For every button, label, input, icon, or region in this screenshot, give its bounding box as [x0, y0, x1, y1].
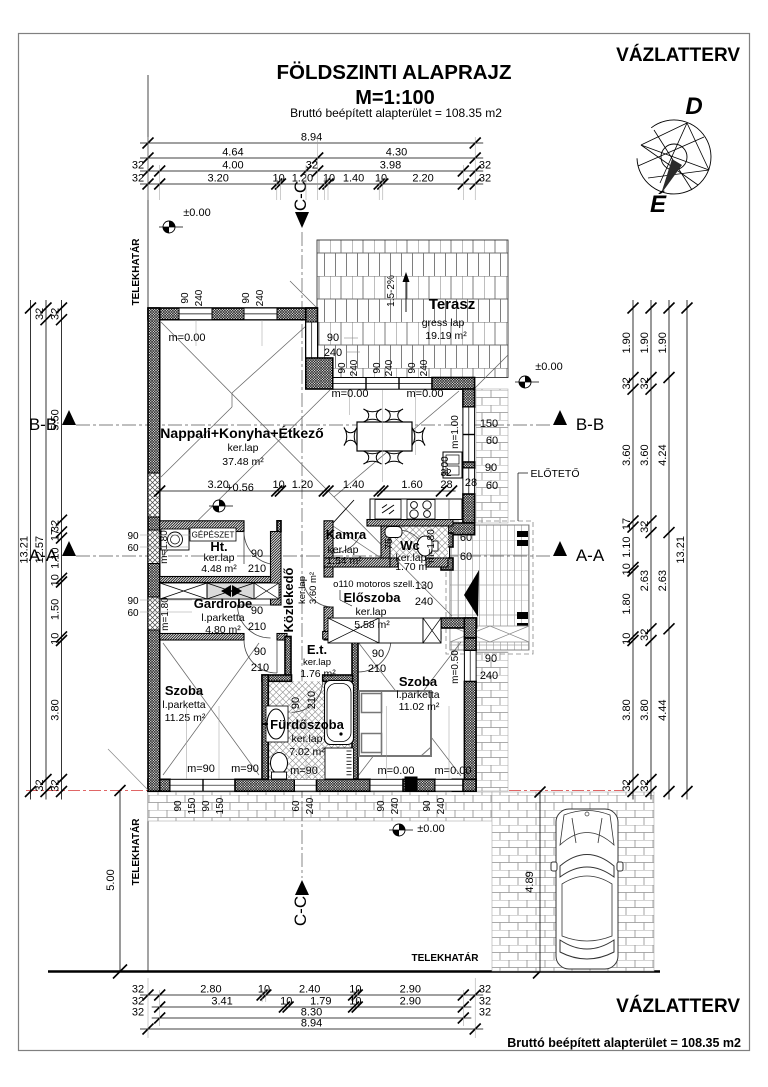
svg-text:Szoba: Szoba — [165, 683, 204, 698]
svg-text:90: 90 — [485, 462, 497, 474]
svg-text:28: 28 — [440, 479, 452, 491]
svg-text:1.90: 1.90 — [621, 332, 633, 353]
svg-text:2.63: 2.63 — [639, 570, 651, 591]
svg-text:210: 210 — [306, 691, 318, 709]
svg-text:90: 90 — [127, 596, 139, 607]
svg-text:3.20: 3.20 — [207, 173, 228, 185]
svg-text:+0.56: +0.56 — [226, 482, 254, 494]
svg-text:90: 90 — [180, 292, 191, 304]
svg-text:10: 10 — [272, 173, 284, 185]
svg-text:3.60 m²: 3.60 m² — [308, 572, 319, 604]
svg-text:90: 90 — [376, 800, 387, 812]
svg-text:60: 60 — [486, 480, 498, 492]
svg-text:32: 32 — [132, 160, 144, 172]
svg-text:240: 240 — [324, 347, 342, 359]
svg-text:32: 32 — [34, 308, 46, 320]
svg-text:1.50: 1.50 — [50, 599, 62, 620]
svg-text:3.20: 3.20 — [207, 479, 228, 491]
svg-text:Kamra: Kamra — [326, 527, 367, 542]
svg-text:Közlekedő: Közlekedő — [281, 567, 296, 632]
svg-text:FÖLDSZINTI ALAPRAJZ: FÖLDSZINTI ALAPRAJZ — [277, 61, 512, 84]
svg-text:10: 10 — [349, 996, 361, 1008]
svg-text:ELŐTETŐ: ELŐTETŐ — [530, 466, 579, 480]
svg-text:10: 10 — [621, 563, 633, 575]
svg-text:m=90: m=90 — [187, 763, 215, 775]
svg-text:32: 32 — [50, 779, 62, 791]
svg-text:ker.lap: ker.lap — [292, 733, 323, 745]
svg-text:240: 240 — [480, 670, 498, 682]
svg-text:2.80: 2.80 — [200, 984, 221, 996]
svg-text:1.40: 1.40 — [343, 173, 364, 185]
svg-text:4.00: 4.00 — [222, 160, 243, 172]
svg-text:1.20: 1.20 — [292, 479, 313, 491]
svg-text:±0.00: ±0.00 — [535, 361, 562, 373]
svg-text:10: 10 — [349, 984, 361, 996]
svg-text:3.98: 3.98 — [380, 160, 401, 172]
svg-text:13.21: 13.21 — [675, 536, 687, 564]
svg-text:m=1.80: m=1.80 — [426, 529, 437, 563]
svg-text:37.48 m²: 37.48 m² — [222, 456, 264, 468]
svg-text:240: 240 — [384, 359, 395, 376]
svg-text:10: 10 — [323, 173, 335, 185]
svg-text:m=0.00: m=0.00 — [407, 388, 444, 400]
svg-text:13.21: 13.21 — [19, 536, 31, 564]
svg-text:ker.lap: ker.lap — [303, 657, 331, 668]
svg-text:m=1.80: m=1.80 — [160, 597, 171, 631]
svg-text:4.24: 4.24 — [657, 444, 669, 465]
svg-text:90: 90 — [422, 800, 433, 812]
svg-text:3.41: 3.41 — [211, 996, 232, 1008]
svg-text:240: 240 — [349, 359, 360, 376]
svg-text:E.t.: E.t. — [307, 642, 327, 657]
svg-text:l.parketta: l.parketta — [201, 612, 244, 624]
svg-text:240: 240 — [436, 797, 447, 814]
svg-text:A-A: A-A — [576, 546, 605, 565]
svg-text:3.60: 3.60 — [639, 444, 651, 465]
svg-text:240: 240 — [194, 289, 205, 306]
svg-text:l.parketta: l.parketta — [396, 689, 439, 701]
svg-text:5.50: 5.50 — [50, 409, 62, 430]
svg-text:60: 60 — [460, 551, 472, 563]
svg-text:32: 32 — [132, 984, 144, 996]
svg-text:32: 32 — [639, 521, 651, 533]
svg-text:90: 90 — [254, 646, 266, 658]
svg-text:TELEKHATÁR: TELEKHATÁR — [129, 238, 142, 306]
svg-text:Wc: Wc — [400, 538, 420, 553]
svg-text:12.57: 12.57 — [34, 536, 46, 564]
svg-text:m=0.00: m=0.00 — [332, 388, 369, 400]
svg-text:90: 90 — [372, 362, 383, 374]
svg-text:gress lap: gress lap — [422, 317, 465, 329]
svg-text:10: 10 — [50, 574, 62, 586]
svg-text:75: 75 — [384, 538, 395, 550]
svg-text:1.60: 1.60 — [401, 479, 422, 491]
svg-text:m=0.00: m=0.00 — [435, 765, 472, 777]
svg-text:240: 240 — [305, 797, 316, 814]
svg-text:2.20: 2.20 — [412, 173, 433, 185]
svg-text:TELEKHATÁR: TELEKHATÁR — [129, 818, 142, 886]
svg-text:m=0.50: m=0.50 — [450, 650, 461, 684]
svg-text:90: 90 — [241, 292, 252, 304]
svg-text:150: 150 — [187, 797, 198, 814]
svg-text:VÁZLATTERV: VÁZLATTERV — [616, 995, 740, 1017]
svg-text:32: 32 — [479, 160, 491, 172]
svg-text:ker.lap: ker.lap — [356, 606, 387, 618]
svg-text:C-C: C-C — [291, 896, 310, 926]
svg-text:D: D — [685, 93, 702, 120]
svg-text:150: 150 — [480, 418, 498, 430]
svg-text:ker.lap: ker.lap — [228, 442, 259, 454]
svg-text:Terasz: Terasz — [429, 296, 475, 313]
svg-text:m=90: m=90 — [231, 763, 259, 775]
svg-text:32: 32 — [479, 984, 491, 996]
svg-text:90: 90 — [407, 362, 418, 374]
svg-text:10: 10 — [50, 633, 62, 645]
svg-text:19.19 m²: 19.19 m² — [425, 330, 467, 342]
svg-text:32: 32 — [639, 629, 651, 641]
svg-text:32: 32 — [639, 377, 651, 389]
svg-text:Fürdőszoba: Fürdőszoba — [270, 717, 344, 732]
svg-text:Szoba: Szoba — [399, 674, 438, 689]
svg-text:240: 240 — [390, 797, 401, 814]
svg-text:240: 240 — [419, 359, 430, 376]
svg-text:17: 17 — [621, 518, 633, 530]
svg-text:TELEKHATÁR: TELEKHATÁR — [411, 951, 479, 964]
svg-text:Gardrobe: Gardrobe — [194, 596, 253, 611]
svg-text:11.25 m²: 11.25 m² — [165, 712, 206, 724]
svg-text:4.44: 4.44 — [657, 699, 669, 720]
svg-text:1.40: 1.40 — [343, 479, 364, 491]
svg-text:m=0.00: m=0.00 — [169, 332, 206, 344]
svg-text:1.5-2%: 1.5-2% — [386, 275, 397, 307]
svg-text:l.parketta: l.parketta — [162, 699, 205, 711]
svg-text:VÁZLATTERV: VÁZLATTERV — [616, 44, 740, 66]
svg-text:90: 90 — [337, 362, 348, 374]
svg-text:4.30: 4.30 — [386, 147, 407, 159]
svg-text:210: 210 — [248, 621, 266, 633]
svg-text:10: 10 — [621, 633, 633, 645]
svg-text:90: 90 — [327, 332, 339, 344]
svg-text:4.64: 4.64 — [222, 147, 243, 159]
svg-text:240: 240 — [415, 596, 433, 608]
svg-text:o110 motoros szell.: o110 motoros szell. — [333, 579, 415, 590]
svg-text:C-C: C-C — [291, 181, 310, 211]
svg-text:±0.00: ±0.00 — [417, 823, 444, 835]
svg-text:±0.00: ±0.00 — [183, 207, 210, 219]
svg-text:60: 60 — [291, 800, 302, 812]
svg-text:2.90: 2.90 — [400, 984, 421, 996]
svg-text:90: 90 — [372, 648, 384, 660]
svg-text:8.94: 8.94 — [301, 1018, 322, 1030]
svg-text:Nappali+Konyha+Étkező: Nappali+Konyha+Étkező — [160, 425, 323, 441]
svg-text:4.80 m²: 4.80 m² — [205, 624, 241, 636]
svg-text:10: 10 — [258, 984, 270, 996]
svg-text:4.89: 4.89 — [524, 871, 536, 892]
svg-text:3.80: 3.80 — [621, 699, 633, 720]
svg-text:90: 90 — [485, 653, 497, 665]
svg-text:90: 90 — [127, 531, 139, 542]
svg-text:1.76 m²: 1.76 m² — [300, 668, 336, 680]
svg-text:4.48 m²: 4.48 m² — [201, 563, 237, 575]
svg-text:2.40: 2.40 — [299, 984, 320, 996]
svg-text:Bruttó beépített alapterület =: Bruttó beépített alapterület = 108.35 m2 — [290, 106, 502, 120]
svg-text:8.94: 8.94 — [301, 132, 322, 144]
svg-text:210: 210 — [251, 662, 269, 674]
svg-text:210: 210 — [248, 563, 266, 575]
svg-text:3.80: 3.80 — [639, 699, 651, 720]
svg-text:1.10: 1.10 — [621, 536, 633, 557]
svg-text:60: 60 — [127, 608, 139, 619]
svg-text:3.60: 3.60 — [621, 444, 633, 465]
svg-text:32: 32 — [306, 160, 318, 172]
svg-text:90: 90 — [290, 697, 302, 709]
svg-text:3.80: 3.80 — [50, 699, 62, 720]
svg-text:m=1.00: m=1.00 — [450, 415, 461, 449]
svg-text:m=0.00: m=0.00 — [378, 765, 415, 777]
svg-text:1.90: 1.90 — [639, 332, 651, 353]
svg-text:32: 32 — [132, 1007, 144, 1019]
svg-text:150: 150 — [215, 797, 226, 814]
svg-text:5.00: 5.00 — [105, 869, 117, 890]
svg-text:10: 10 — [375, 173, 387, 185]
svg-text:32: 32 — [34, 779, 46, 791]
svg-text:28: 28 — [465, 477, 477, 489]
svg-text:m=90: m=90 — [290, 765, 318, 777]
svg-text:90: 90 — [173, 800, 184, 812]
svg-text:32: 32 — [621, 377, 633, 389]
svg-text:32: 32 — [639, 779, 651, 791]
svg-text:32: 32 — [440, 468, 452, 479]
svg-text:60: 60 — [127, 543, 139, 554]
svg-text:240: 240 — [255, 289, 266, 306]
svg-text:Bruttó beépített alapterület =: Bruttó beépített alapterület = 108.35 m2 — [507, 1036, 741, 1050]
svg-text:ker.lap: ker.lap — [297, 576, 308, 604]
svg-text:2.90: 2.90 — [400, 996, 421, 1008]
svg-text:1.10: 1.10 — [50, 547, 62, 568]
svg-text:90: 90 — [201, 800, 212, 812]
svg-text:130: 130 — [415, 580, 433, 592]
svg-text:2.63: 2.63 — [657, 570, 669, 591]
svg-text:90: 90 — [251, 548, 263, 560]
svg-text:60: 60 — [460, 532, 472, 544]
svg-text:10: 10 — [280, 996, 292, 1008]
svg-text:É: É — [650, 190, 667, 218]
svg-text:32: 32 — [479, 173, 491, 185]
svg-text:7.02 m²: 7.02 m² — [289, 746, 325, 758]
svg-text:32: 32 — [132, 173, 144, 185]
svg-text:17: 17 — [50, 529, 62, 541]
svg-text:10: 10 — [272, 479, 284, 491]
svg-text:90: 90 — [251, 605, 263, 617]
svg-text:1.80: 1.80 — [621, 593, 633, 614]
svg-text:32: 32 — [50, 308, 62, 320]
svg-text:60: 60 — [486, 435, 498, 447]
svg-text:B-B: B-B — [576, 415, 604, 434]
svg-text:210: 210 — [368, 663, 386, 675]
svg-text:Előszoba: Előszoba — [343, 590, 401, 605]
svg-text:1.90: 1.90 — [657, 332, 669, 353]
svg-text:1.54 m²: 1.54 m² — [326, 555, 362, 567]
svg-text:32: 32 — [479, 1007, 491, 1019]
svg-text:11.02 m²: 11.02 m² — [399, 701, 440, 713]
svg-text:32: 32 — [621, 779, 633, 791]
svg-text:1.20: 1.20 — [292, 173, 313, 185]
svg-text:5.58 m²: 5.58 m² — [354, 619, 390, 631]
